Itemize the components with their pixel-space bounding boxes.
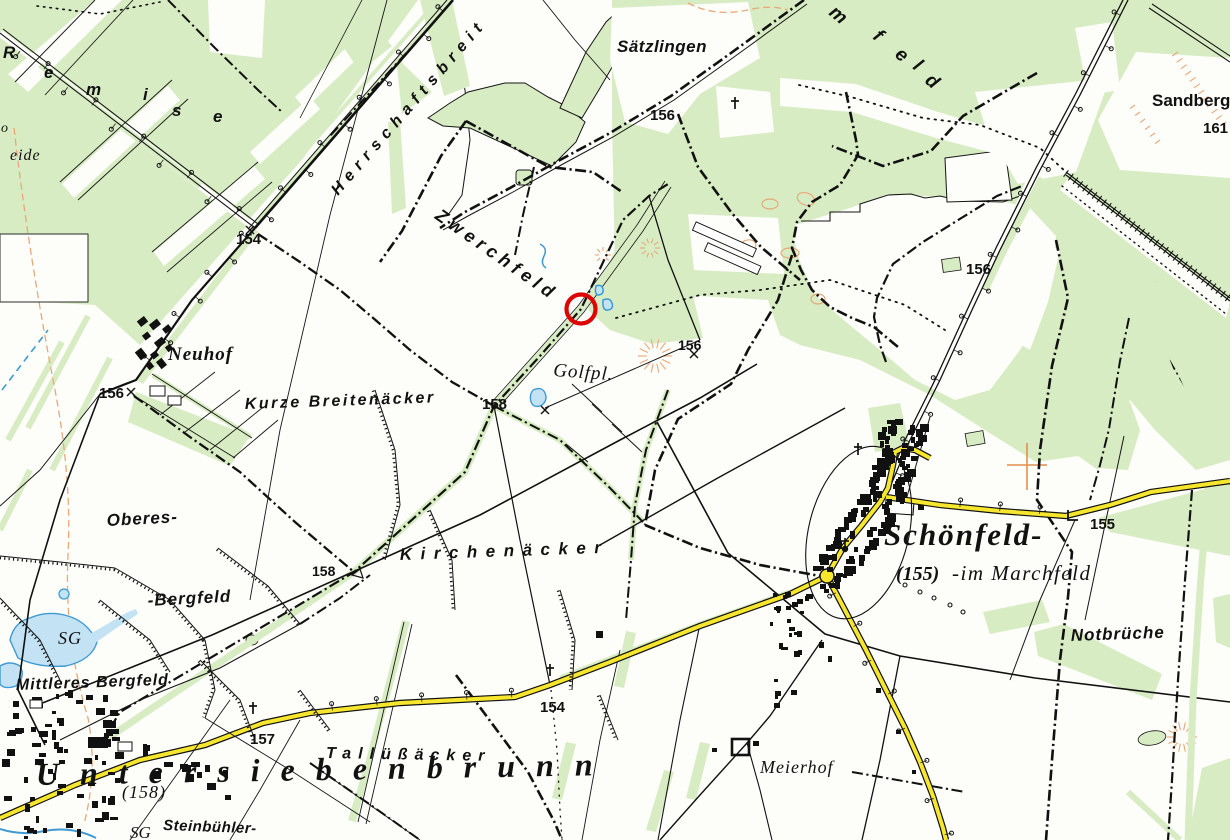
svg-text:-im Marchfeld: -im Marchfeld xyxy=(952,561,1091,585)
svg-text:R: R xyxy=(3,43,16,62)
svg-text:Notbrüche: Notbrüche xyxy=(1070,623,1165,645)
svg-text:o: o xyxy=(1,121,8,136)
svg-text:Schönfeld-: Schönfeld- xyxy=(884,517,1044,552)
svg-text:Golfpl.: Golfpl. xyxy=(553,360,615,385)
svg-text:e: e xyxy=(213,107,222,126)
svg-text:Meierhof: Meierhof xyxy=(759,757,836,777)
svg-text:158: 158 xyxy=(312,563,336,579)
svg-text:Oberes-: Oberes- xyxy=(106,507,178,530)
svg-text:m: m xyxy=(86,80,101,99)
svg-text:Sandberg: Sandberg xyxy=(1152,91,1230,110)
svg-text:eide: eide xyxy=(10,147,41,164)
svg-text:161: 161 xyxy=(1203,120,1228,137)
svg-text:SG: SG xyxy=(58,628,82,648)
svg-text:156: 156 xyxy=(99,385,124,402)
svg-text:154: 154 xyxy=(236,231,262,248)
svg-text:154: 154 xyxy=(540,699,566,716)
svg-text:Tallüßäcker: Tallüßäcker xyxy=(326,745,492,765)
svg-text:s: s xyxy=(172,101,181,120)
svg-text:156: 156 xyxy=(650,107,675,124)
svg-text:(155): (155) xyxy=(896,563,939,585)
svg-text:Steinbühler-: Steinbühler- xyxy=(163,817,257,837)
svg-text:156: 156 xyxy=(678,337,702,353)
svg-text:158: 158 xyxy=(482,396,507,413)
svg-text:155: 155 xyxy=(1090,516,1115,533)
svg-text:157: 157 xyxy=(250,731,275,748)
svg-text:(158): (158) xyxy=(122,782,166,803)
svg-text:e: e xyxy=(44,63,53,82)
svg-text:SG: SG xyxy=(130,823,151,840)
svg-text:Sätzlingen: Sätzlingen xyxy=(617,37,707,56)
svg-text:Neuhof: Neuhof xyxy=(167,344,234,365)
svg-text:156: 156 xyxy=(966,261,991,278)
